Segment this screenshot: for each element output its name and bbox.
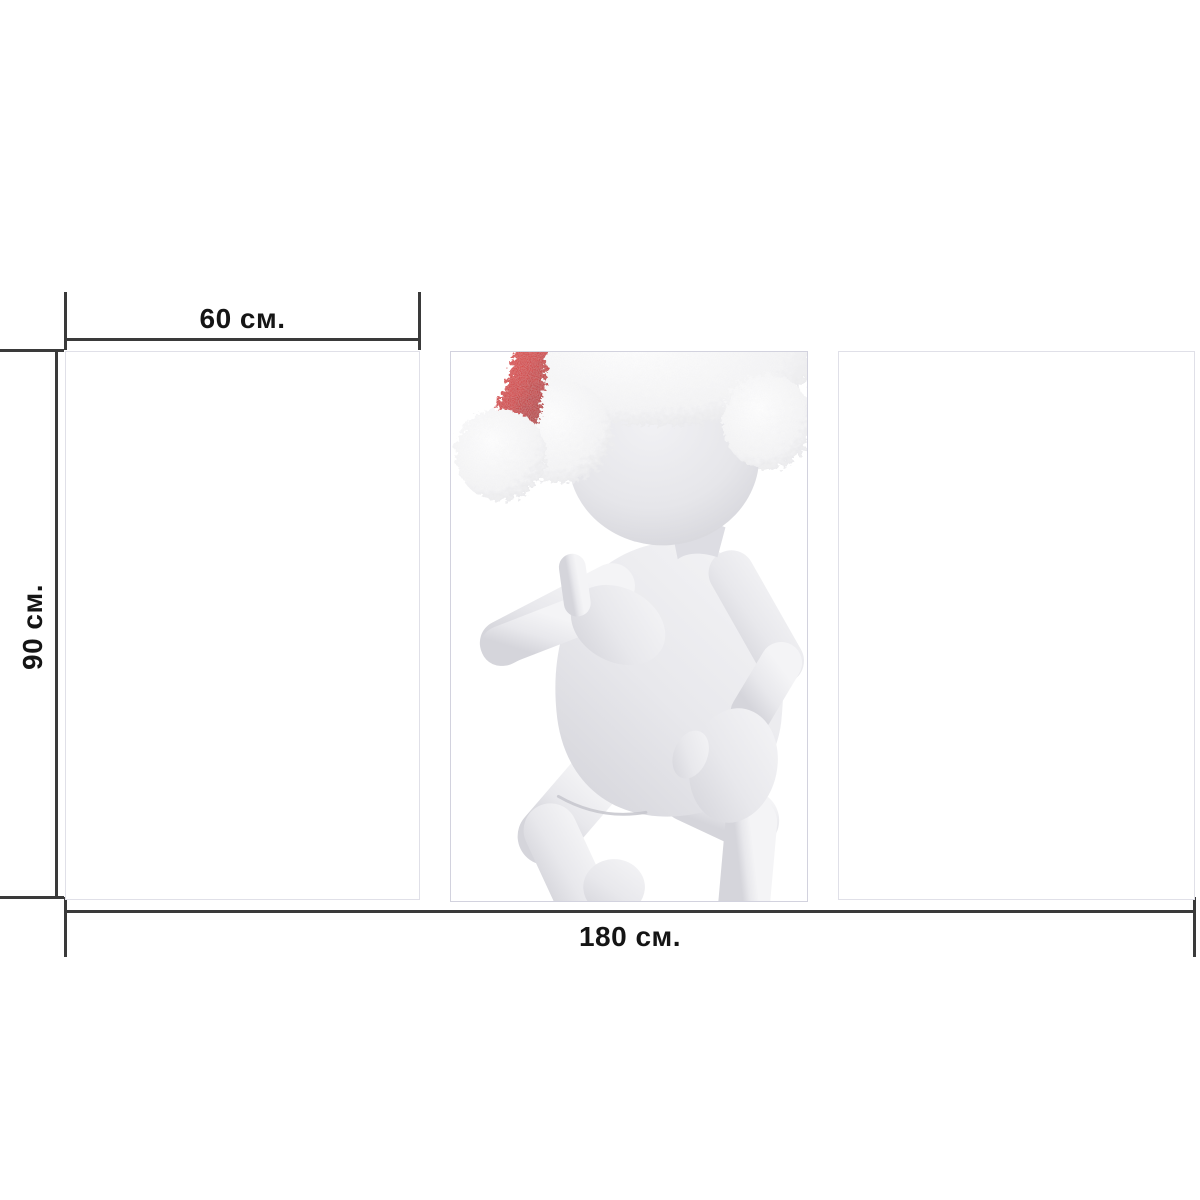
panel-height-dimension-tick-bottom xyxy=(0,896,64,899)
figure-thumb xyxy=(572,567,577,603)
panel-left xyxy=(65,351,420,900)
panel-height-dimension-tick-top xyxy=(0,349,64,352)
santa-hat-pompom xyxy=(455,409,546,501)
santa-character-figure xyxy=(451,352,807,901)
total-width-label: 180 см. xyxy=(64,921,1196,953)
panel-height-dimension-line xyxy=(55,350,58,899)
size-diagram-canvas: 60 см. 90 см. 180 см. xyxy=(0,0,1200,1200)
total-width-dimension-line xyxy=(64,910,1196,913)
panel-width-label: 60 см. xyxy=(64,303,421,335)
panel-width-dimension-line xyxy=(64,338,421,341)
panel-right xyxy=(838,351,1195,900)
panel-height-label: 90 см. xyxy=(15,557,51,697)
panel-center xyxy=(450,351,808,902)
